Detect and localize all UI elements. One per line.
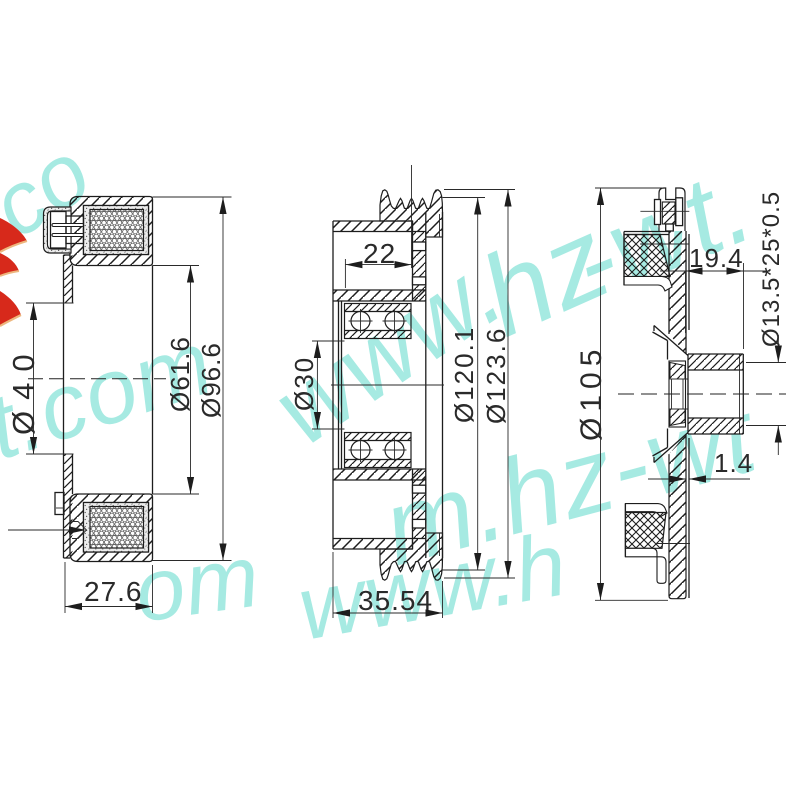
svg-text:27.6: 27.6 [84, 576, 143, 607]
svg-text:Ø123.6: Ø123.6 [481, 327, 511, 424]
svg-text:Ø30: Ø30 [289, 356, 319, 411]
svg-text:22: 22 [363, 238, 396, 269]
svg-text:19.4: 19.4 [689, 243, 744, 273]
svg-text:1.4: 1.4 [714, 448, 753, 478]
svg-text:Ø96.6: Ø96.6 [196, 342, 226, 418]
svg-text:Ø120.1: Ø120.1 [449, 326, 479, 423]
svg-text:Ø40: Ø40 [6, 343, 41, 435]
svg-text:Ø13.5*25*0.5: Ø13.5*25*0.5 [758, 191, 785, 347]
svg-text:35.54: 35.54 [358, 585, 433, 616]
svg-text:Ø105: Ø105 [575, 344, 608, 441]
svg-text:Ø61.6: Ø61.6 [165, 336, 195, 412]
